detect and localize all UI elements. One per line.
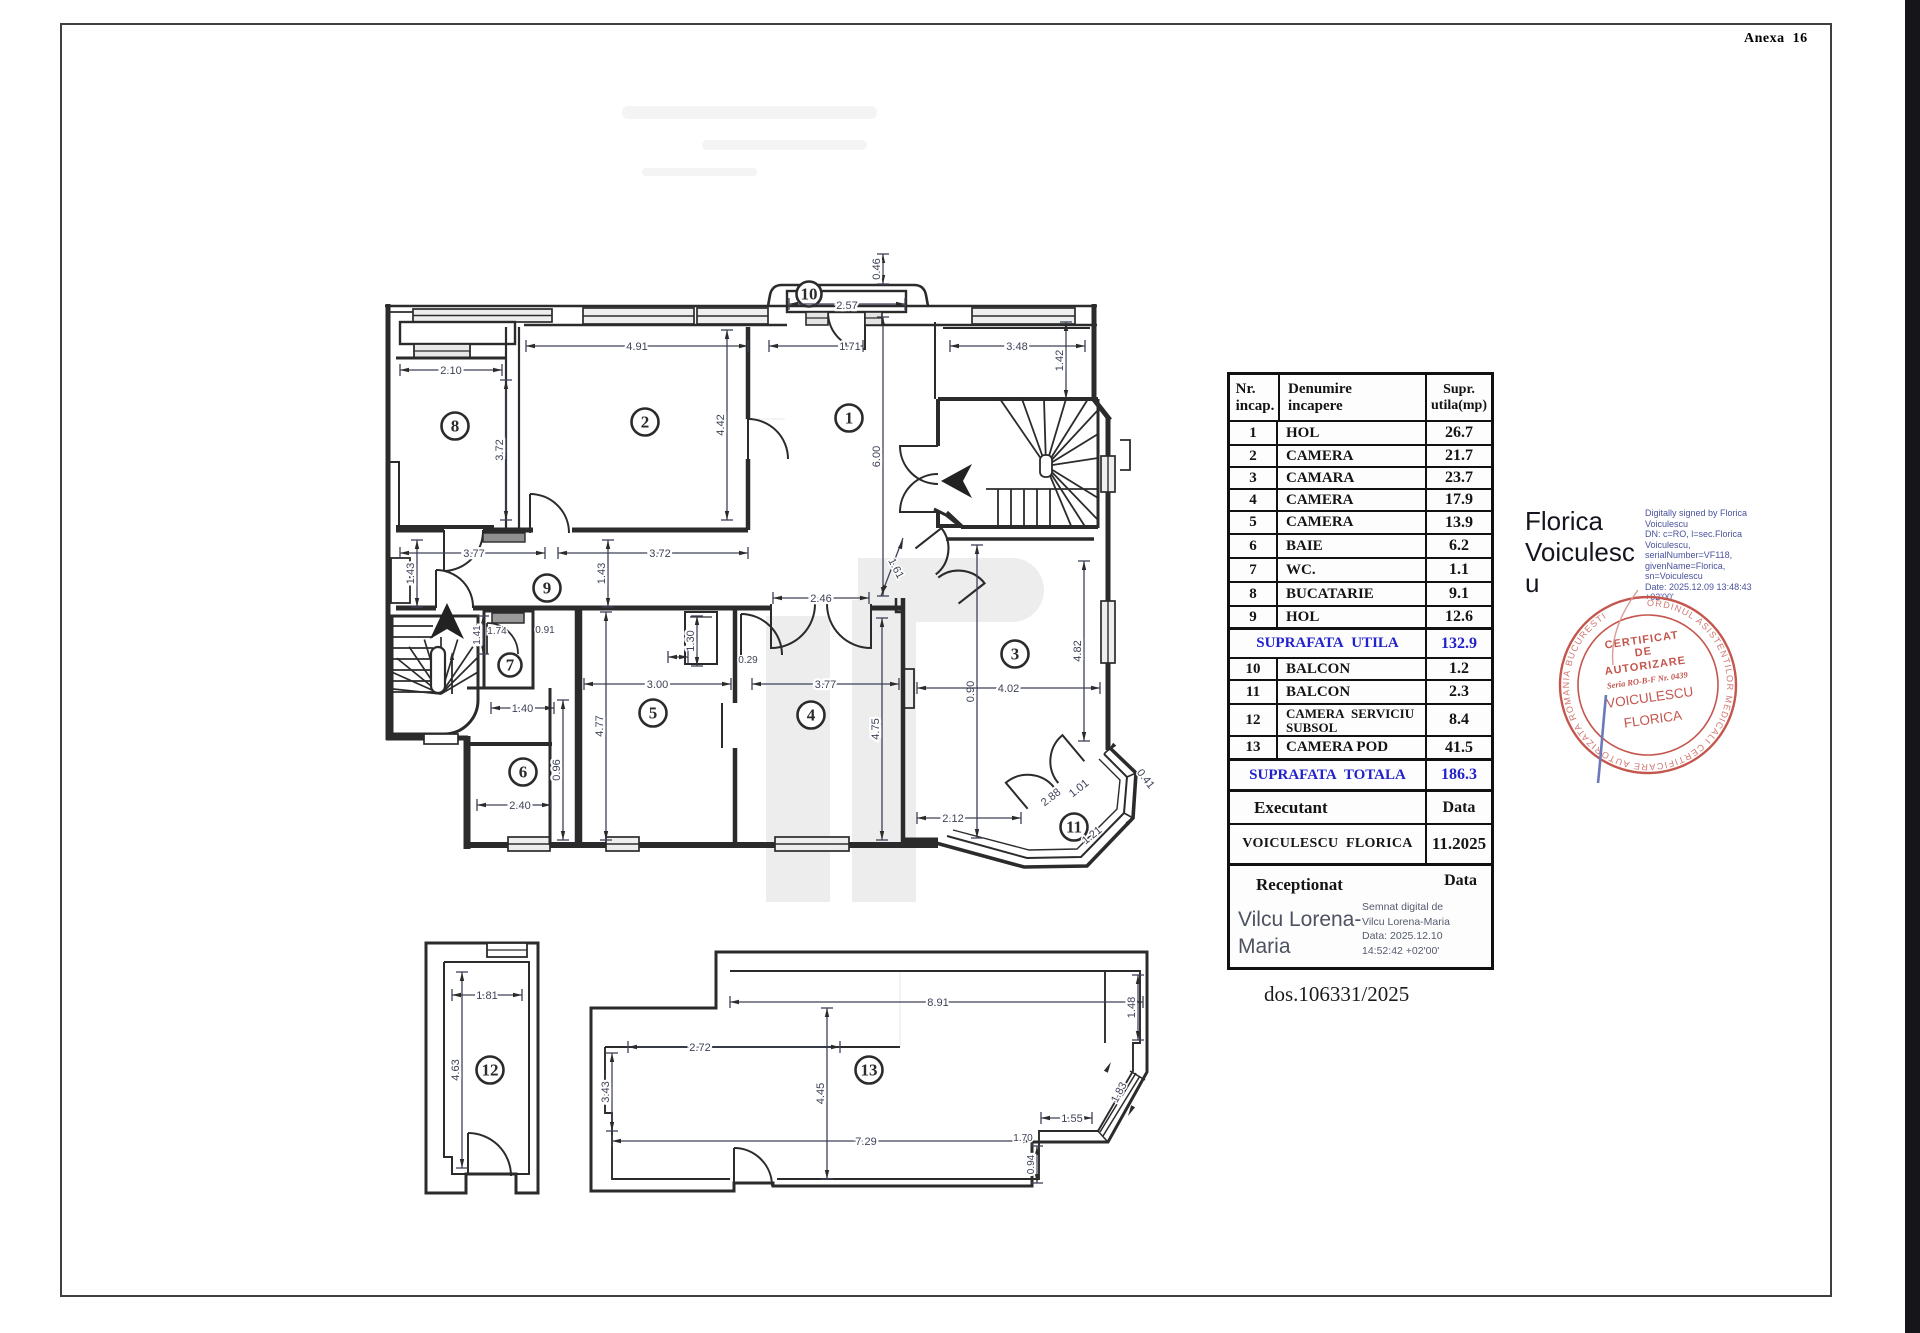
svg-text:2.40: 2.40 [509,800,530,812]
svg-text:0.91: 0.91 [535,625,555,636]
svg-text:3.48: 3.48 [1006,341,1027,353]
svg-text:8.91: 8.91 [927,997,948,1009]
svg-text:1.55: 1.55 [1061,1113,1082,1125]
svg-text:6: 6 [519,763,528,782]
svg-text:3.72: 3.72 [494,439,506,460]
svg-text:3.00: 3.00 [647,679,668,691]
svg-text:4.63: 4.63 [450,1059,462,1080]
svg-text:4.45: 4.45 [815,1083,827,1104]
svg-text:1.43: 1.43 [405,563,417,584]
svg-text:3.72: 3.72 [649,548,670,560]
svg-text:1.01: 1.01 [1067,777,1091,800]
svg-text:5: 5 [649,704,658,723]
svg-text:DE: DE [1634,645,1653,659]
svg-text:9: 9 [543,579,552,598]
svg-text:1.42: 1.42 [1054,350,1066,371]
svg-text:4: 4 [807,706,816,725]
svg-text:13: 13 [861,1061,878,1080]
svg-text:2.72: 2.72 [689,1042,710,1054]
svg-text:1.71: 1.71 [839,341,860,353]
svg-text:ORDINUL ASISTENTILOR MEDICALI: ORDINUL ASISTENTILOR MEDICALI CERTIFICAR… [1550,587,1747,783]
svg-text:1.43: 1.43 [596,563,608,584]
svg-text:3.77: 3.77 [463,548,484,560]
svg-text:1.74: 1.74 [487,626,507,637]
svg-text:6.00: 6.00 [871,446,883,467]
svg-text:1.70: 1.70 [1013,1133,1033,1144]
svg-text:1.48: 1.48 [1126,997,1138,1018]
svg-text:2.12: 2.12 [942,813,963,825]
svg-text:0.96: 0.96 [551,759,563,780]
svg-text:4.82: 4.82 [1072,640,1084,661]
svg-text:4.75: 4.75 [870,718,882,739]
svg-text:3.43: 3.43 [600,1081,612,1102]
svg-text:11: 11 [1066,818,1082,837]
svg-text:1.41: 1.41 [472,625,483,645]
svg-text:3: 3 [1011,645,1020,664]
svg-text:4.91: 4.91 [626,341,647,353]
svg-text:2.46: 2.46 [810,593,831,605]
svg-text:2: 2 [641,413,650,432]
svg-text:4.42: 4.42 [715,414,727,435]
svg-text:0.41: 0.41 [1134,767,1157,791]
svg-text:2.10: 2.10 [440,365,461,377]
svg-text:FLORICA: FLORICA [1623,708,1683,731]
svg-text:3.77: 3.77 [815,679,836,691]
svg-text:1: 1 [845,409,854,428]
svg-text:0.46: 0.46 [871,258,883,279]
svg-text:1.83: 1.83 [1109,1080,1130,1105]
svg-text:0.90: 0.90 [965,681,977,702]
svg-text:1.30: 1.30 [685,630,697,651]
svg-text:8: 8 [451,417,460,436]
svg-text:7.29: 7.29 [855,1136,876,1148]
svg-text:10: 10 [801,285,818,304]
svg-text:4.02: 4.02 [998,683,1019,695]
svg-text:0.29: 0.29 [738,655,758,666]
svg-text:7: 7 [506,656,515,675]
svg-text:1.40: 1.40 [512,703,533,715]
svg-text:2.57: 2.57 [836,300,857,312]
svg-text:1.81: 1.81 [476,990,497,1002]
svg-text:4.77: 4.77 [594,715,606,736]
svg-text:0.94: 0.94 [1026,1154,1037,1174]
svg-text:2.88: 2.88 [1039,786,1063,809]
svg-text:12: 12 [482,1061,499,1080]
